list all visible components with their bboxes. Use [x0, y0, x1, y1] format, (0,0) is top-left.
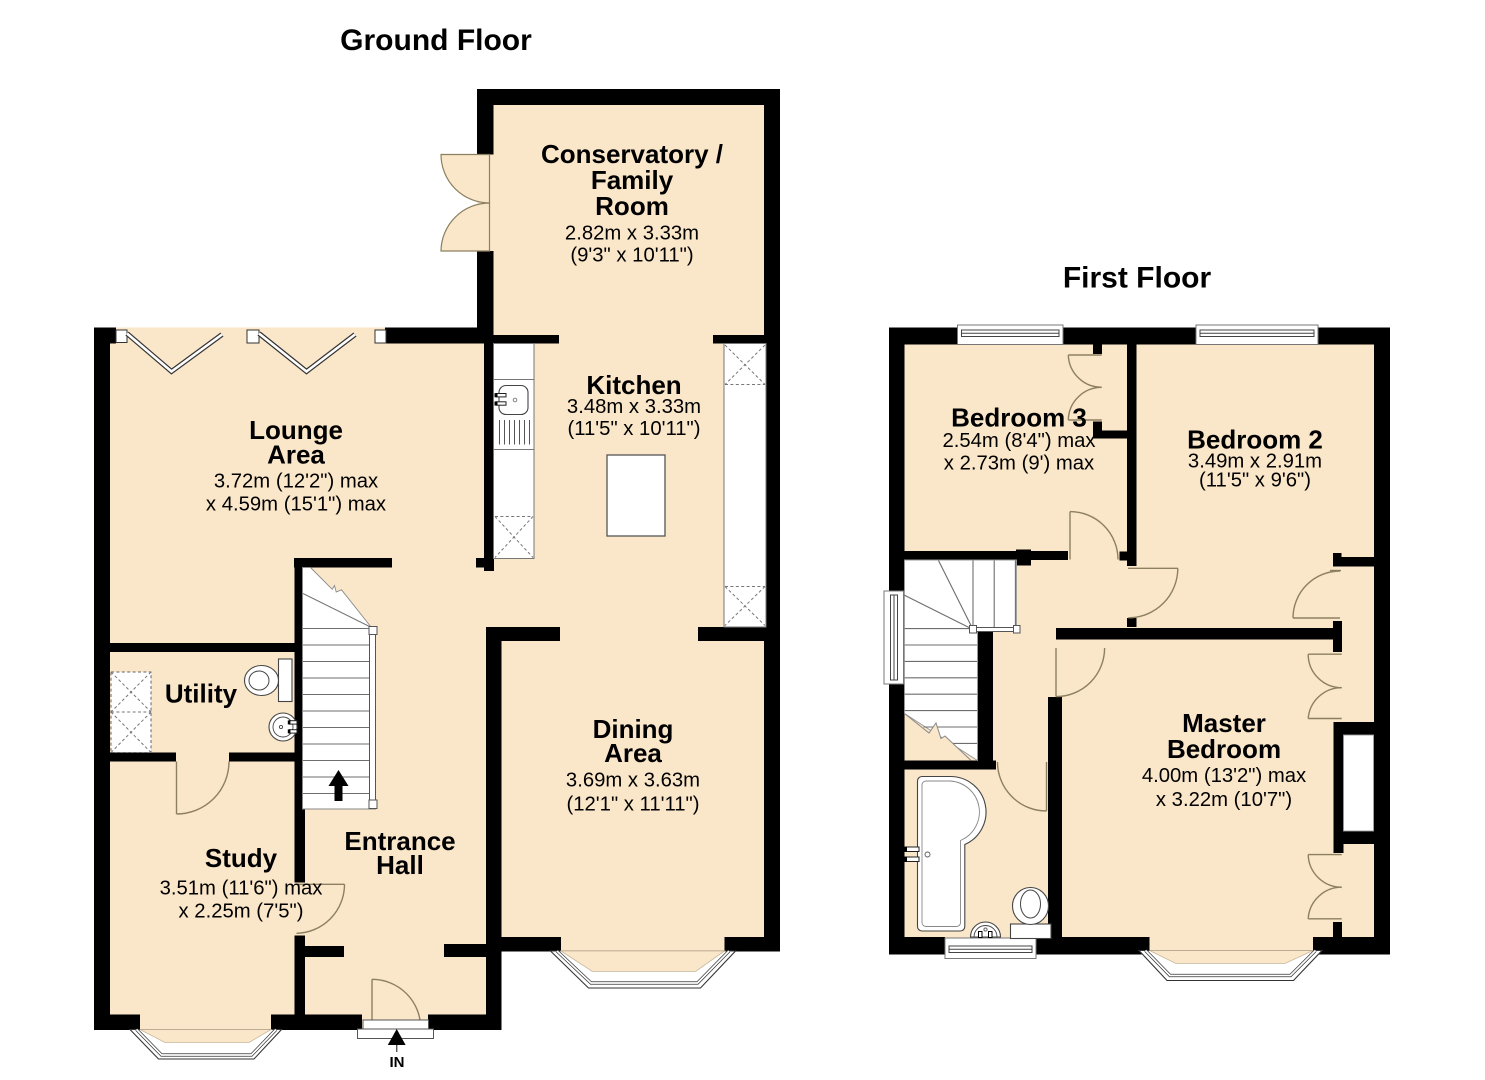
- svg-text:2.82m x 3.33m: 2.82m x 3.33m: [565, 223, 699, 245]
- svg-text:(11'5" x 10'11"): (11'5" x 10'11"): [567, 418, 700, 440]
- svg-text:Area: Area: [267, 440, 325, 470]
- svg-text:3.51m (11'6") max: 3.51m (11'6") max: [160, 878, 323, 900]
- svg-text:First Floor: First Floor: [1063, 262, 1212, 295]
- svg-text:x 2.73m (9') max: x 2.73m (9') max: [944, 453, 1094, 475]
- svg-text:(12'1" x 11'11"): (12'1" x 11'11"): [566, 794, 699, 816]
- svg-text:3.48m x 3.33m: 3.48m x 3.33m: [567, 396, 701, 418]
- svg-text:x 3.22m (10'7"): x 3.22m (10'7"): [1156, 789, 1292, 811]
- svg-text:3.69m x 3.63m: 3.69m x 3.63m: [566, 770, 700, 792]
- svg-text:Bedroom: Bedroom: [1167, 734, 1281, 764]
- svg-text:Hall: Hall: [376, 850, 424, 880]
- svg-text:Utility: Utility: [165, 679, 238, 709]
- svg-text:(9'3" x 10'11"): (9'3" x 10'11"): [570, 245, 693, 267]
- svg-text:Ground Floor: Ground Floor: [340, 24, 532, 57]
- svg-text:4.00m (13'2") max: 4.00m (13'2") max: [1142, 765, 1306, 787]
- svg-text:Bedroom 3: Bedroom 3: [951, 403, 1087, 433]
- svg-text:3.72m (12'2") max: 3.72m (12'2") max: [214, 471, 378, 493]
- svg-text:x 4.59m (15'1") max: x 4.59m (15'1") max: [206, 494, 386, 516]
- svg-text:Area: Area: [604, 738, 662, 768]
- svg-text:(11'5" x 9'6"): (11'5" x 9'6"): [1199, 470, 1311, 492]
- svg-text:IN: IN: [390, 1054, 405, 1071]
- svg-text:Room: Room: [595, 191, 669, 221]
- svg-text:Study: Study: [205, 843, 278, 873]
- svg-text:2.54m (8'4") max: 2.54m (8'4") max: [942, 430, 1095, 452]
- svg-text:x 2.25m (7'5"): x 2.25m (7'5"): [179, 901, 304, 923]
